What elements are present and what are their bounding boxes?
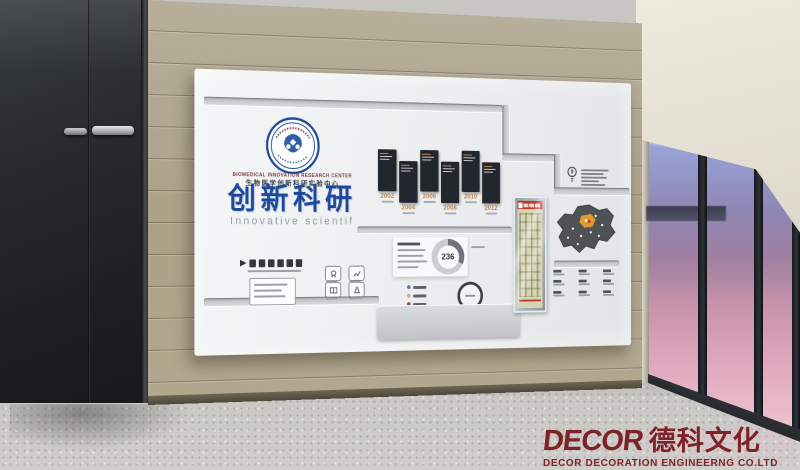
city-photo bbox=[484, 174, 498, 193]
watermark-logo: DECOR 德科文化 DECOR DECORATION ENGINEERNG C… bbox=[543, 419, 778, 469]
wall-groove bbox=[357, 226, 511, 233]
watermark-brand-en: DECOR bbox=[541, 425, 644, 458]
wall-groove bbox=[554, 187, 629, 195]
wall-groove bbox=[554, 260, 619, 267]
timeline-poster bbox=[482, 162, 500, 203]
door-handle-right bbox=[92, 126, 134, 135]
wall-groove bbox=[502, 153, 560, 161]
timeline-poster bbox=[441, 162, 459, 204]
slogan-marker: ▶ bbox=[240, 259, 247, 268]
idea-text-list bbox=[581, 166, 612, 188]
door-seam bbox=[88, 0, 90, 403]
book-icon bbox=[325, 282, 341, 298]
donut-chart: 236 bbox=[432, 239, 465, 275]
timeline-poster bbox=[420, 150, 438, 192]
legend-dot-tan bbox=[407, 294, 411, 298]
timeline-poster bbox=[399, 161, 417, 203]
city-photo bbox=[380, 162, 395, 181]
door-frame bbox=[141, 0, 148, 403]
timeline-card: 2012 bbox=[482, 162, 500, 214]
timeline-poster bbox=[462, 151, 480, 192]
watermark-brand-zh: 德科文化 bbox=[649, 419, 761, 458]
wall-title-en: Innovative scientif bbox=[204, 215, 379, 227]
feature-wall: BIOMEDICAL INNOVATION RESEARCH CENTER 生物… bbox=[148, 0, 642, 470]
legend-item bbox=[407, 294, 426, 298]
door-handle-left bbox=[64, 128, 87, 135]
stat-panel: 236 bbox=[393, 237, 468, 277]
timeline-card: 2002 bbox=[378, 149, 397, 203]
idea-block bbox=[566, 165, 624, 188]
watermark-subtitle: DECOR DECORATION ENGINEERNG CO.LTD bbox=[543, 458, 778, 469]
legend-dot-blue bbox=[407, 285, 411, 289]
timeline-poster bbox=[378, 149, 397, 191]
chart-icon bbox=[348, 266, 364, 281]
slogan-glyph bbox=[249, 259, 256, 267]
timeline-year: 2010 bbox=[462, 194, 480, 201]
timeline-year: 2004 bbox=[399, 205, 417, 212]
logo-badge bbox=[265, 116, 320, 175]
timeline-card: 2010 bbox=[462, 151, 480, 204]
city-photo bbox=[463, 163, 478, 182]
slogan-heading: ▶ bbox=[240, 258, 302, 267]
wall-title-zh: 创新科研 bbox=[204, 184, 379, 215]
door bbox=[0, 0, 148, 403]
door-sheen bbox=[0, 0, 148, 70]
timeline-card: 2006 bbox=[420, 150, 438, 203]
province-map bbox=[553, 203, 624, 256]
interior-render: BIOMEDICAL INNOVATION RESEARCH CENTER 生物… bbox=[0, 0, 800, 470]
map-shape bbox=[557, 205, 615, 253]
display-board: BIOMEDICAL INNOVATION RESEARCH CENTER 生物… bbox=[194, 69, 631, 356]
donut-value: 236 bbox=[441, 252, 454, 261]
logo-badge-emblem bbox=[265, 116, 320, 175]
timeline-card: 2008 bbox=[441, 162, 459, 215]
timeline-year: 2008 bbox=[441, 205, 459, 212]
medal-icon bbox=[325, 266, 341, 282]
city-photo bbox=[443, 174, 458, 193]
wall-groove bbox=[204, 97, 502, 113]
timeline-year: 2006 bbox=[420, 193, 438, 200]
legend-item bbox=[407, 285, 426, 289]
city-photo bbox=[422, 162, 437, 181]
donut-caption-bar bbox=[471, 246, 485, 248]
glass-reflection bbox=[515, 198, 545, 311]
map-capital-dot bbox=[588, 220, 591, 223]
blank-gray-panel bbox=[377, 303, 520, 339]
lightbulb-icon bbox=[566, 165, 577, 185]
timeline-year: 2012 bbox=[482, 205, 500, 212]
info-box bbox=[249, 278, 295, 306]
timeline-card: 2004 bbox=[399, 161, 417, 214]
timeline-year: 2002 bbox=[378, 193, 397, 200]
stats-grid bbox=[553, 269, 623, 299]
flask-icon bbox=[348, 282, 364, 298]
slogan-subtitle-bar bbox=[247, 270, 301, 272]
notice-display-case bbox=[513, 196, 546, 313]
distant-horizon bbox=[646, 206, 726, 221]
city-photo bbox=[401, 173, 416, 192]
